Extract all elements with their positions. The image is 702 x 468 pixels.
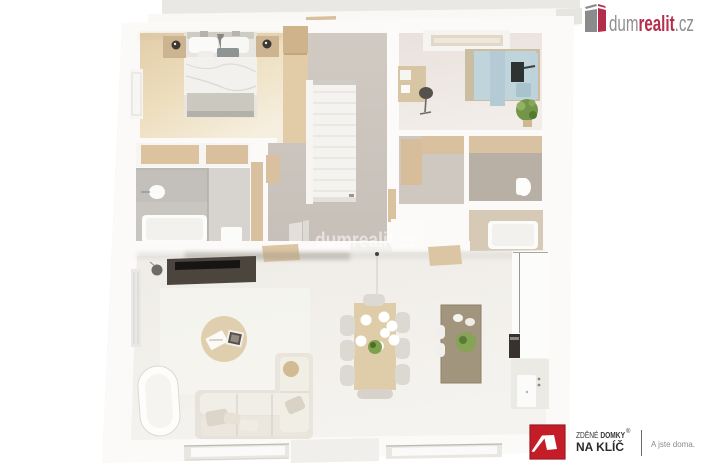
svg-text:ZDĚNÉ DOMKY: ZDĚNÉ DOMKY (576, 431, 626, 440)
svg-text:A jste doma.: A jste doma. (651, 439, 695, 449)
svg-text:NA KLÍČ: NA KLÍČ (576, 439, 624, 454)
svg-text:dumrealit.cz: dumrealit.cz (609, 11, 694, 36)
svg-text:dumrealit.cz: dumrealit.cz (315, 229, 417, 252)
svg-text:®: ® (626, 428, 631, 435)
